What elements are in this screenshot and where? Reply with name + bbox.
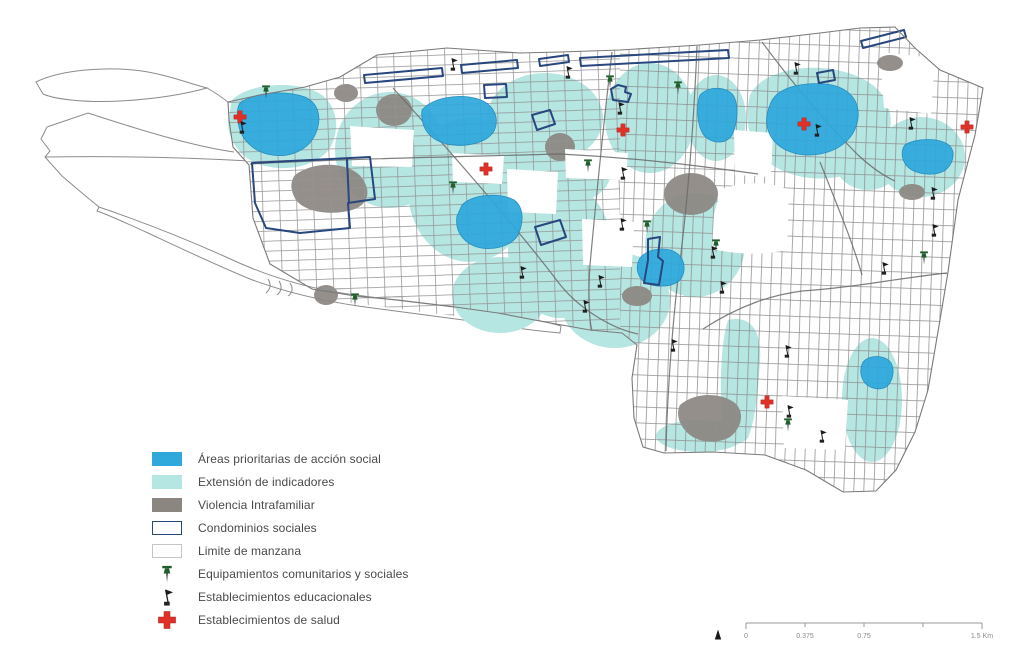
flag-icon (164, 589, 173, 605)
block-limit-swatch (152, 544, 182, 558)
legend: Áreas prioritarias de acción socialExten… (152, 447, 408, 631)
domestic-violence-swatch (152, 498, 182, 512)
pushpin-icon (158, 564, 176, 584)
flag-icon (158, 587, 176, 607)
legend-label: Áreas prioritarias de acción social (198, 452, 381, 466)
social-condominiums-swatch (152, 521, 182, 535)
legend-item-indicator-extent: Extensión de indicadores (152, 470, 408, 493)
red-cross-icon (159, 611, 176, 628)
scale-bar: 00.3750.751.5 Km (705, 616, 1010, 650)
scale-tick-label: 0.375 (796, 633, 814, 640)
red-cross-icon (158, 610, 176, 630)
legend-label: Violencia Intrafamiliar (198, 498, 315, 512)
legend-item-domestic-violence: Violencia Intrafamiliar (152, 493, 408, 516)
legend-label: Extensión de indicadores (198, 475, 335, 489)
legend-label: Condominios sociales (198, 521, 317, 535)
legend-item-education-facilities: Establecimientos educacionales (152, 585, 408, 608)
legend-item-block-limit: Limite de manzana (152, 539, 408, 562)
pushpin-icon (162, 565, 171, 581)
legend-item-community-facilities: Equipamientos comunitarios y sociales (152, 562, 408, 585)
legend-item-social-condominiums: Condominios sociales (152, 516, 408, 539)
legend-label: Establecimientos educacionales (198, 590, 372, 604)
legend-item-priority-areas: Áreas prioritarias de acción social (152, 447, 408, 470)
map-page: Áreas prioritarias de acción socialExten… (0, 0, 1024, 654)
west-hill-outline (36, 69, 207, 102)
legend-label: Equipamientos comunitarios y sociales (198, 567, 408, 581)
indicator-extent-swatch (152, 475, 182, 489)
scale-tick-label: 1.5 Km (971, 633, 993, 640)
legend-label: Limite de manzana (198, 544, 301, 558)
legend-item-health-facilities: Establecimientos de salud (152, 608, 408, 631)
legend-label: Establecimientos de salud (198, 613, 340, 627)
priority-areas-swatch (152, 452, 182, 466)
scale-tick-label: 0 (744, 633, 748, 640)
scale-tick-label: 0.75 (857, 633, 871, 640)
